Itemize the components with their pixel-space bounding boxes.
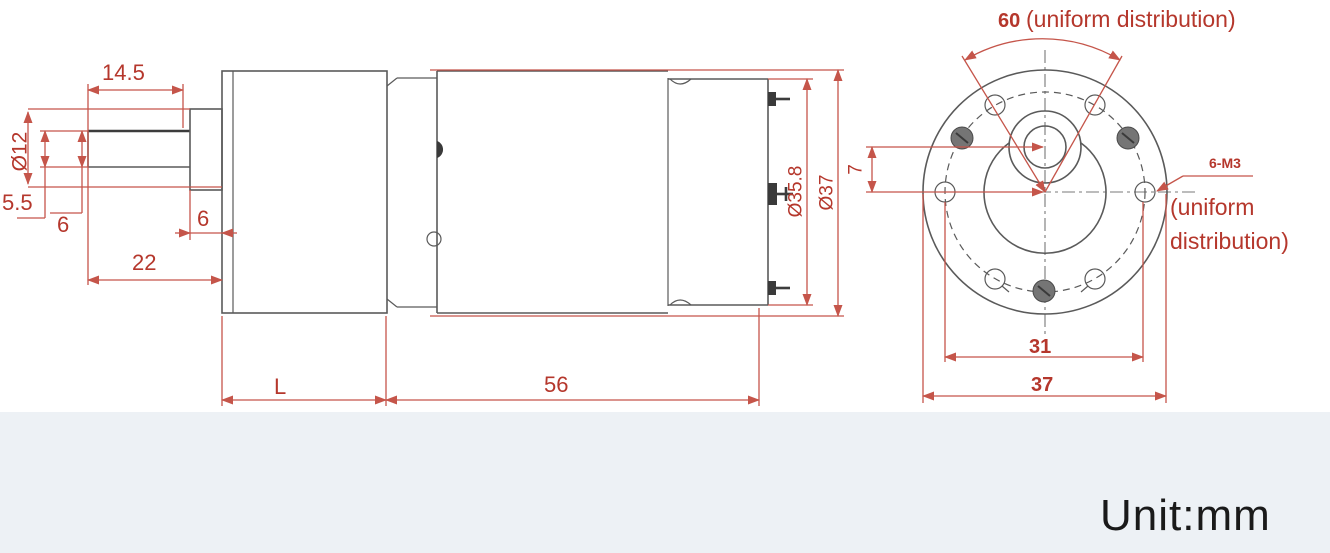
- motor-can-outline: [427, 71, 668, 313]
- screw-note-line1: (uniform: [1170, 196, 1254, 219]
- dim-lines-hub-diameter: [28, 109, 222, 187]
- dim-lines-hole-angle: [962, 39, 1122, 192]
- dim-hole-angle: 60: [998, 11, 1020, 31]
- dim-hub-diameter: Ø12: [10, 120, 31, 184]
- dim-shaft-offset: 7: [847, 158, 866, 182]
- dim-lines-gearbox-length: [222, 316, 386, 406]
- dim-screw-spec: 6-M3: [1209, 156, 1241, 170]
- adapter-ring-outline: [387, 78, 437, 307]
- terminal-top: [768, 92, 790, 106]
- vent-hole-mark: [427, 232, 441, 246]
- brush-cap-mark: [437, 141, 443, 158]
- dim-endcap-diameter: Ø35.8: [787, 152, 806, 232]
- output-shaft-outline: [88, 131, 190, 167]
- dim-shaft-flat-width: 5.5: [2, 192, 33, 214]
- end-view: [918, 50, 1197, 337]
- dim-bolt-circle: 31: [1029, 337, 1051, 357]
- side-view: [88, 71, 793, 313]
- dim-hole-angle-note: (uniform distribution): [1026, 8, 1236, 31]
- dim-lines-motor-length: [386, 308, 759, 406]
- unit-label: Unit:mm: [1100, 494, 1271, 538]
- gearbox-outline: [222, 71, 387, 313]
- dim-flange-width: 37: [1031, 375, 1053, 395]
- dim-shaft-flat-length: 14.5: [102, 62, 145, 84]
- screw-note-line2: distribution): [1170, 230, 1289, 253]
- terminal-bottom: [768, 281, 790, 295]
- dim-lines-shaft-flat-length: [88, 84, 183, 128]
- dim-gearbox-length: L: [274, 376, 286, 398]
- dim-shaft-length: 22: [132, 252, 156, 274]
- leader-screw-spec: [1157, 176, 1253, 191]
- endcap-outline: [668, 79, 768, 305]
- dim-body-diameter: Ø37: [818, 163, 837, 223]
- dim-hub-length: 6: [197, 208, 209, 230]
- dim-lines-shaft-diameter: [50, 131, 82, 213]
- technical-drawing: 14.5 Ø12 5.5 6 6 22 L 56 Ø35.8 Ø37 7 60 …: [0, 0, 1330, 553]
- dim-shaft-diameter: 6: [57, 214, 69, 236]
- drawing-linework: [0, 0, 1330, 553]
- dim-motor-length: 56: [544, 374, 568, 396]
- side-view-dimensions: [17, 70, 844, 406]
- shaft-hub-outline: [190, 109, 222, 190]
